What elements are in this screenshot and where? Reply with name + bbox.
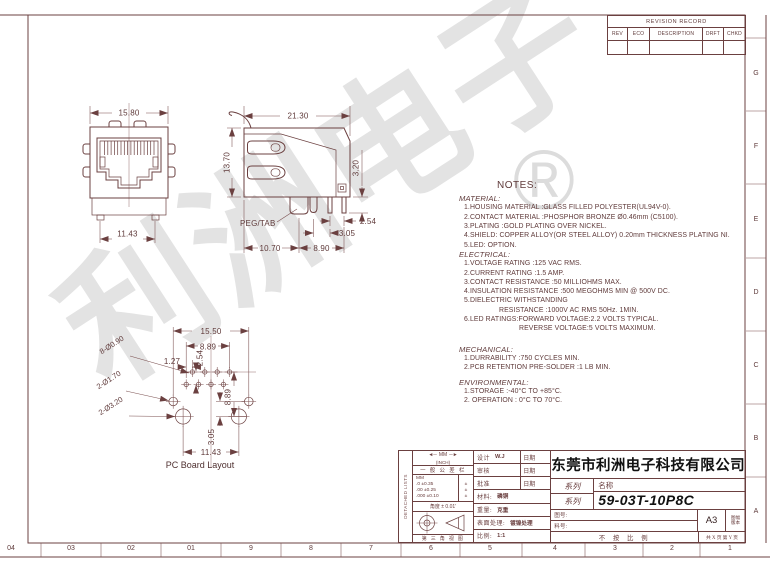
grid-label-bottom: 04 [1,545,21,552]
note-line: 6.LED RATINGS:FORWARD VOLTAGE:2.2 VOLTS … [464,315,741,324]
col-rev: REV [608,28,628,40]
date-label: 日期 [520,451,550,463]
front-pin-span-dim: 11.43 [117,230,138,239]
note-line: 5.LED: OPTION. [464,241,741,250]
drawing-number-section: 图号: 料号: A3 图幅 版本 [551,510,745,532]
side-peg-pin-dim: 3.05 [339,229,356,238]
weight-row: 重量: 克重 [474,504,550,517]
grid-label-right: F [746,143,766,150]
note-line: 5.DIELECTRIC WITHSTANDING [464,296,741,305]
note-line: 1.DURRABILITY :750 CYCLES MIN. [464,354,741,363]
side-pin-row-dim: 8.90 [313,244,330,253]
detached-lists-strip: DETACHED LISTS [399,451,413,542]
drawing-no-label: 图号: [551,510,697,521]
mechanical-heading: MECHANICAL: [459,345,741,354]
pcb-pin-offset-dim: 1.27 [164,357,181,366]
date-label: 日期 [520,464,550,476]
note-line: 2.PCB RETENTION PRE-SOLDER :1 LB MIN. [464,363,741,372]
grid-label-bottom: 2 [662,545,682,552]
peg-tab-label: PEG/TAB [240,219,275,228]
grid-label-bottom: 1 [720,545,740,552]
grid-label-right: C [746,362,766,369]
pcb-row-pitch-dim: 2.54 [196,349,205,366]
grid-label-bottom: 7 [361,545,381,552]
pcb-layout: 15.50 8.89 1.27 2.54 [95,327,256,470]
engineering-drawing-sheet: 利洲电子 ® 15.80 [0,0,770,561]
pcb-peg-spacing-dim: 15.50 [200,327,221,336]
scale-row: 比例: 1:1 [474,530,550,542]
third-angle-projection-icon [413,512,473,534]
revision-empty-row [608,41,745,55]
pin-holes-label: 8-Ø0.90 [98,334,126,356]
surface-value: 镀镍处理 [505,519,532,527]
side-pin-pitch-dim: 2.54 [360,217,377,226]
grid-label-right: A [746,508,766,515]
tol-row: .000 ±0.10 [416,494,458,500]
not-to-scale-label: 不 按 比 例 [551,532,698,542]
tolerance-table: MM .0 ±0.35 .00 ±0.25 .000 ±0.10 ± ± ± [413,475,473,501]
weight-value: 克重 [492,506,508,514]
note-line: 3.PLATING :GOLD PLATING OVER NICKEL. [464,222,741,231]
pcb-hole-gap-dim: 3.05 [207,428,216,445]
revision-record-title: REVISION RECORD [608,16,745,28]
detached-lists-label: DETACHED LISTS [403,474,408,519]
grid-label-bottom: 01 [181,545,201,552]
tolerance-inch-header: (INCH) [413,460,473,467]
pcb-row-to-hole-dim: 8.89 [224,388,233,405]
part-number: 59-03T-10P8C [594,492,745,508]
grid-label-bottom: 03 [61,545,81,552]
grid-label-right: B [746,435,766,442]
note-line: RESISTANCE :1000V AC RMS 50Hz. 1MIN. [499,306,741,315]
grid-label-bottom: 02 [121,545,141,552]
pcb-shield-spacing-dim: 11.43 [201,448,222,457]
title-block: DETACHED LISTS ◄─ MM ─► (INCH) 一 般 公 差 栏… [398,450,746,543]
designer-name: W.J [490,454,505,460]
front-view: 15.80 11.43 [83,103,175,243]
notes-title: NOTES: [497,180,741,191]
note-line: 4.SHIELD: COPPER ALLOY(OR STEEL ALLOY) 0… [464,231,741,240]
note-line: 3.CONTACT RESISTANCE :50 MILLIOHMS MAX. [464,278,741,287]
grid-label-bottom: 3 [605,545,625,552]
series-label: 系列 [551,479,593,494]
company-name: 东莞市利洲电子科技有限公司 [551,451,745,479]
col-drft: DRFT [703,28,724,40]
revision-record-table: REVISION RECORD REV ECO DESCRIPTION DRFT… [607,15,746,55]
side-pin-length-dim: 3.20 [352,159,361,176]
grid-label-right: D [746,289,766,296]
scale-value: 1:1 [492,533,505,539]
side-view: 21.30 13.70 3 [223,106,377,253]
series-label: 系列 [551,494,593,508]
tolerance-header: ◄─ MM ─► [413,451,473,460]
material-heading: MATERIAL: [459,194,741,203]
material-value: 磷铜 [492,492,508,500]
peg-holes-label: 2-Ø1.70 [95,369,123,391]
tol-pm: ± [465,494,468,500]
version-label: 版本 [731,520,740,525]
general-tolerance-label: 一 般 公 差 栏 [413,466,473,475]
angle-tolerance: 角度 ± 0.01' [413,502,473,512]
grid-label-bottom: 6 [421,545,441,552]
pcb-caption: PC Board Layout [166,460,235,470]
col-eco: ECO [628,28,650,40]
shield-holes-label: 2-Ø3.20 [97,395,125,417]
note-line: 1.STORAGE :-40°C TO +85°C. [464,387,741,396]
grid-label-bottom: 8 [301,545,321,552]
grid-label-right: E [746,216,766,223]
surface-row: 表面处理: 镀镍处理 [474,517,550,530]
pin-holes-bottom-row [181,379,228,389]
note-line: 4.INSULATION RESISTANCE :500 MEGOHMS MIN… [464,287,741,296]
note-line: 1.HOUSING MATERIAL :GLASS FILLED POLYEST… [464,203,741,212]
col-description: DESCRIPTION [650,28,703,40]
environmental-heading: ENVIRONMENTAL: [459,378,741,387]
note-line: 1.VOLTAGE RATING :125 VAC RMS. [464,259,741,268]
electrical-heading: ELECTRICAL: [459,250,741,259]
revision-header-row: REV ECO DESCRIPTION DRFT CHKD [608,28,745,41]
note-line: 2. OPERATION : 0°C TO 70°C. [464,396,741,405]
side-height-dim: 13.70 [223,152,232,173]
company-column: 东莞市利洲电子科技有限公司 系列 系列 名称 59-03T-10P8C 图号: … [551,451,745,542]
name-label: 名称 [594,479,745,492]
grid-label-bottom: 4 [545,545,565,552]
col-chkd: CHKD [724,28,745,40]
page-count-label: 共 X 页 第 Y 页 [698,532,745,542]
material-row: 材料: 磷铜 [474,490,550,503]
side-depth-dim: 21.30 [287,112,308,121]
front-width-dim: 15.80 [118,109,139,118]
paper-size: A3 [697,510,725,531]
signature-column: 设计 W.J 日期 审核 日期 批准 日期 材料: 磷铜 重量: 克重 表面处理… [474,451,551,542]
check-row: 审核 日期 [474,464,550,477]
series-section: 系列 系列 名称 59-03T-10P8C [551,479,745,509]
side-peg-offset-dim: 10.70 [259,244,280,253]
grid-label-bottom: 9 [241,545,261,552]
part-no-label: 料号: [551,521,697,531]
grid-label-right: G [746,70,766,77]
notes-block: NOTES: MATERIAL: 1.HOUSING MATERIAL :GLA… [459,180,741,406]
approve-row: 批准 日期 [474,477,550,490]
design-row: 设计 W.J 日期 [474,451,550,464]
date-label: 日期 [520,477,550,489]
note-line: REVERSE VOLTAGE:5 VOLTS MAXIMUM. [519,324,741,333]
grid-label-bottom: 5 [480,545,500,552]
note-line: 2.CONTACT MATERIAL :PHOSPHOR BRONZE Ø0.4… [464,213,741,222]
tolerance-box: ◄─ MM ─► (INCH) 一 般 公 差 栏 MM .0 ±0.35 .0… [413,451,474,542]
third-angle-label: 第 三 角 视 图 [413,534,473,542]
note-line: 2.CURRENT RATING :1.5 AMP. [464,269,741,278]
